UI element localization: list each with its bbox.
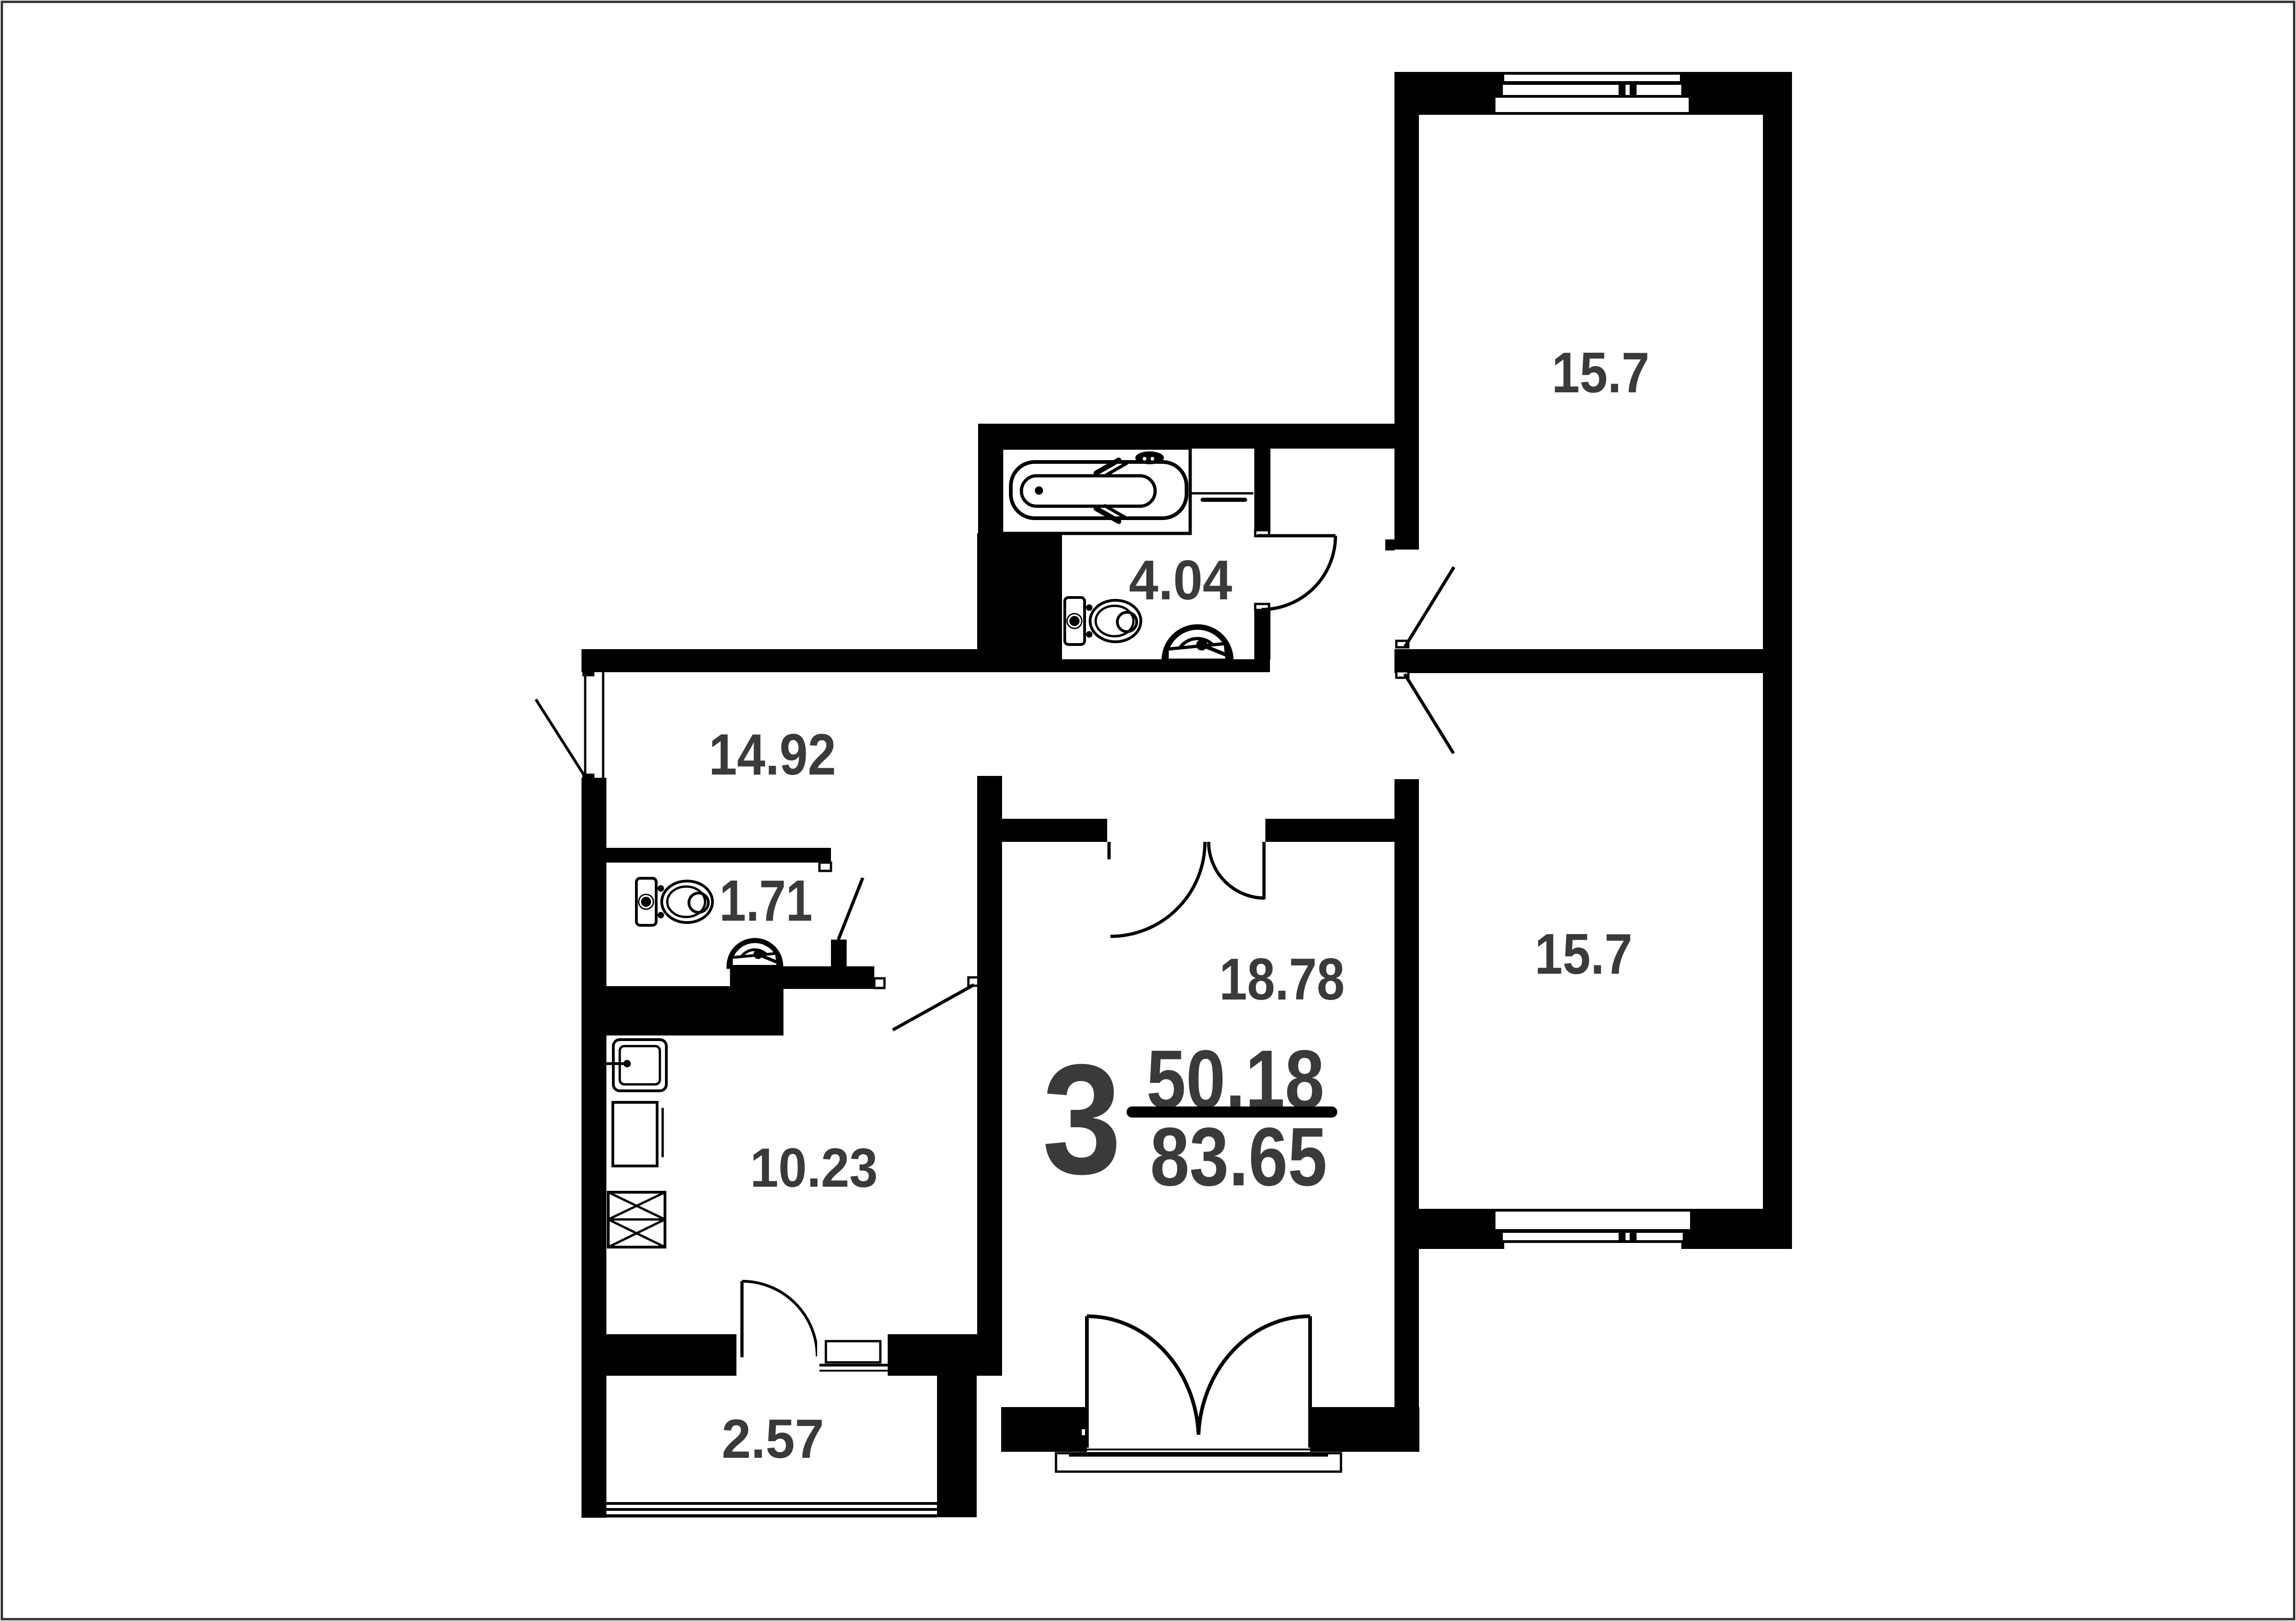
svg-text:10.23: 10.23 (750, 1137, 878, 1199)
svg-text:4.04: 4.04 (1129, 549, 1232, 611)
svg-text:15.7: 15.7 (1535, 923, 1632, 986)
svg-text:3: 3 (1042, 1032, 1121, 1207)
svg-text:1.71: 1.71 (719, 868, 813, 933)
svg-text:18.78: 18.78 (1219, 947, 1345, 1012)
svg-text:14.92: 14.92 (709, 722, 836, 787)
svg-text:15.7: 15.7 (1552, 341, 1649, 405)
svg-text:2.57: 2.57 (722, 1408, 824, 1470)
svg-text:83.65: 83.65 (1150, 1111, 1327, 1203)
